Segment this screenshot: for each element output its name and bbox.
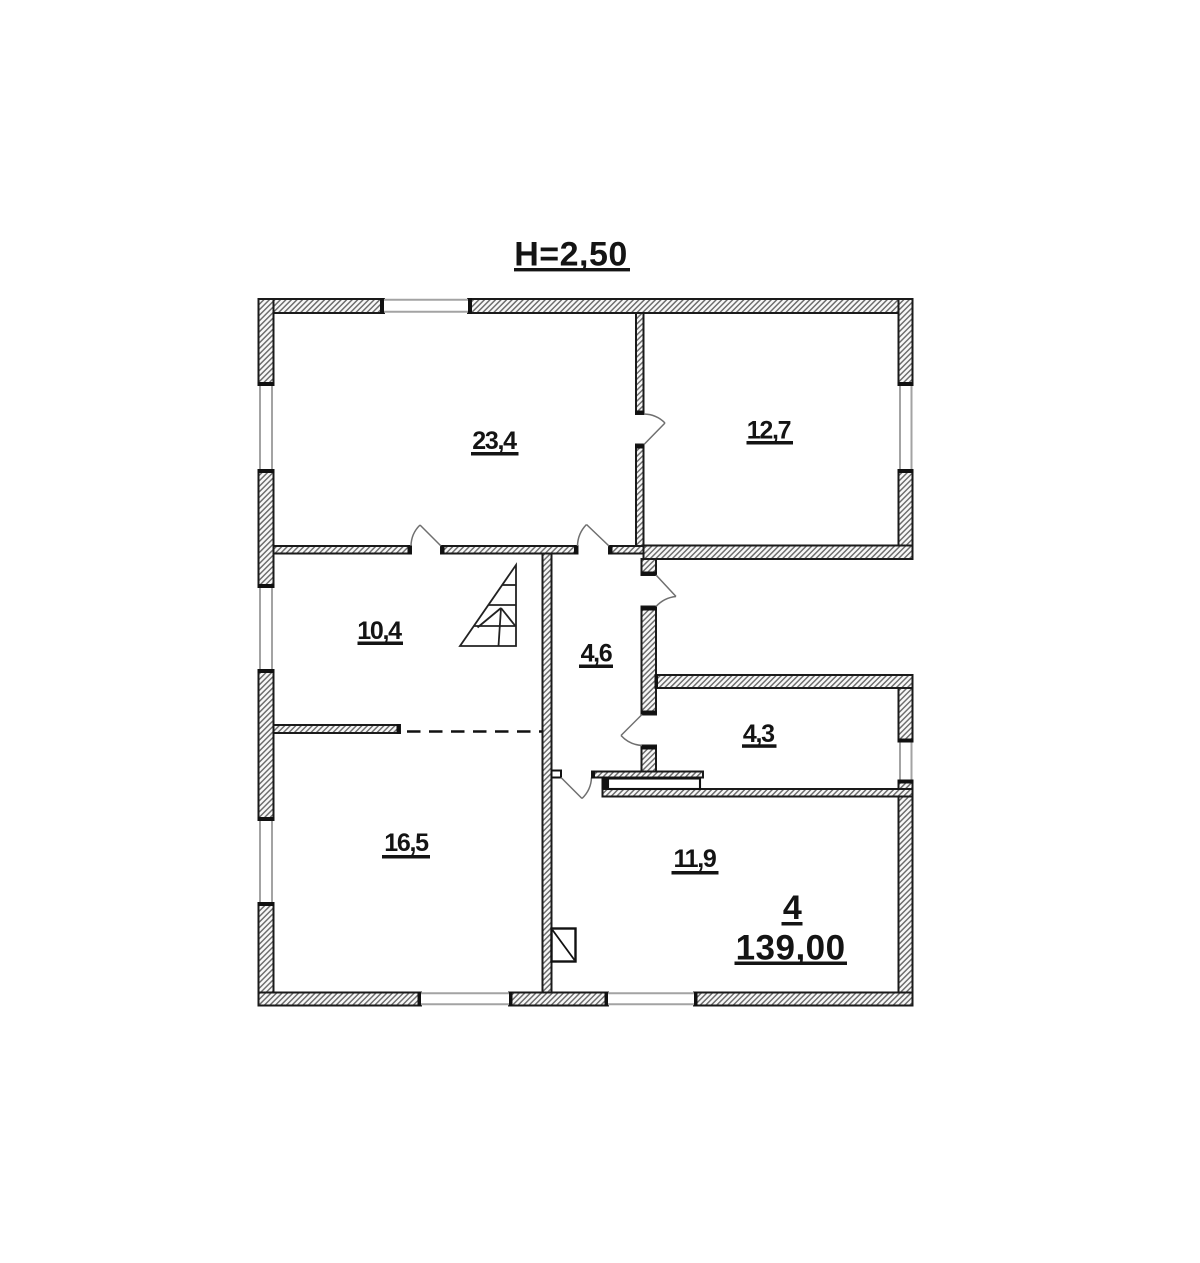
svg-text:23,4: 23,4 bbox=[472, 427, 517, 455]
svg-text:H=2,50: H=2,50 bbox=[514, 236, 628, 274]
svg-text:10,4: 10,4 bbox=[357, 617, 402, 645]
svg-text:4,3: 4,3 bbox=[743, 720, 774, 748]
svg-text:12,7: 12,7 bbox=[747, 417, 791, 445]
svg-text:16,5: 16,5 bbox=[384, 829, 429, 857]
svg-text:4,6: 4,6 bbox=[581, 640, 612, 668]
svg-text:4: 4 bbox=[783, 889, 802, 927]
svg-text:11,9: 11,9 bbox=[673, 845, 715, 873]
